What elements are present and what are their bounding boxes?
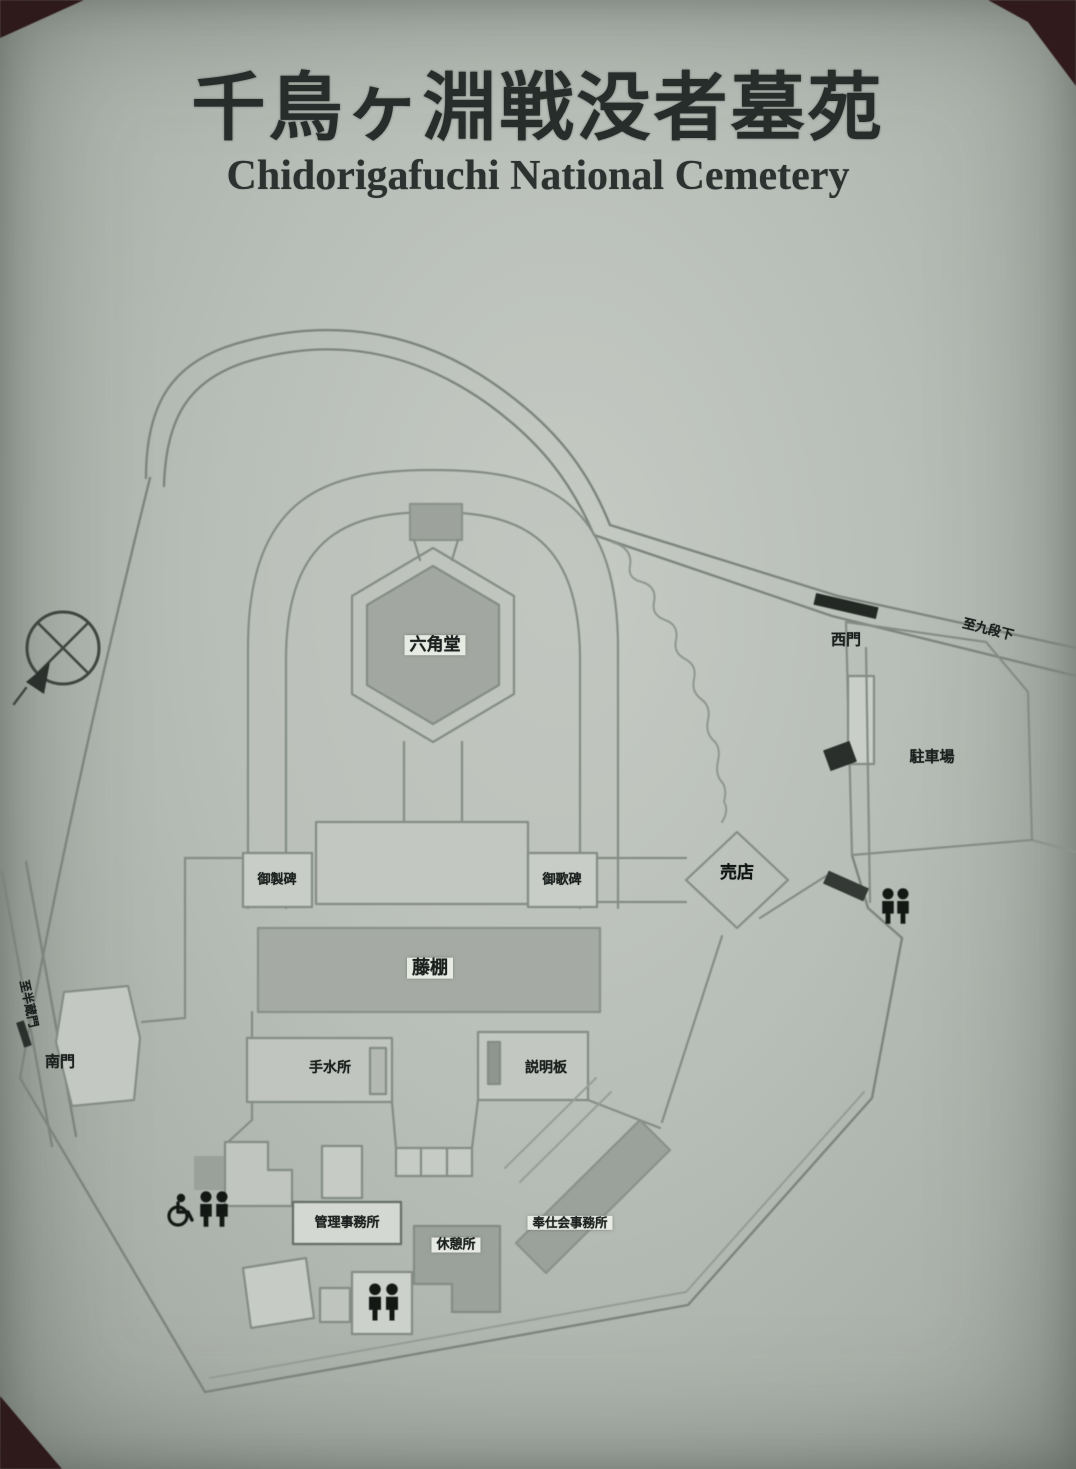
moat-edge: [612, 542, 726, 822]
admin-office-label: 管理事務所: [314, 1216, 379, 1231]
south-gate-label: 南門: [45, 1053, 75, 1070]
west-gate-label: 西門: [831, 631, 861, 648]
shop-label: 売店: [720, 863, 754, 883]
parking-label: 駐車場: [909, 748, 954, 765]
south-gate-building: [56, 986, 140, 1106]
toilet-icon: [882, 888, 909, 924]
sign-photo: 千鳥ヶ淵戦没者墓苑 Chidorigafuchi National Cemete…: [0, 0, 1076, 1469]
monument-left-label: 御製碑: [257, 873, 296, 888]
monument-right-label: 御歌碑: [542, 873, 581, 888]
gate-marker: [823, 871, 869, 902]
hexagon-hall-label: 六角堂: [405, 635, 466, 655]
water-basin-label: 手水所: [309, 1059, 351, 1075]
site-map-drawing: [0, 0, 1076, 1469]
toilet-icon: [200, 1191, 228, 1227]
trellis-label: 藤棚: [407, 958, 453, 979]
wheelchair-icon: [169, 1194, 192, 1225]
service-office-building: [505, 1078, 670, 1273]
info-board-label: 説明板: [525, 1059, 567, 1075]
restroom-building: [352, 1272, 412, 1334]
service-office-label: 奉仕会事務所: [527, 1216, 612, 1230]
compass-icon: [14, 612, 99, 704]
rest-area-label: 休憩所: [431, 1238, 480, 1253]
